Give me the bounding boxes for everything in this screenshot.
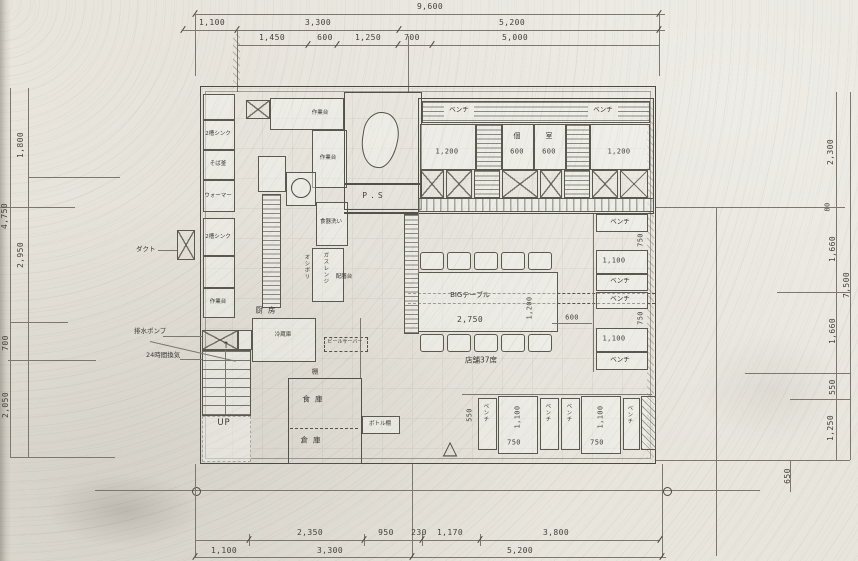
dim-line-left-outer [10, 88, 11, 458]
dim-line-top-total [195, 14, 665, 15]
dim-top-1450: 1,450 [259, 34, 285, 42]
survey-point-circle [663, 487, 672, 496]
up-arrow-icon: ↑ [222, 341, 230, 351]
wall-segment [360, 318, 361, 378]
tatami-walk-strip [474, 170, 500, 198]
dim-right-650: 650 [784, 468, 792, 484]
shelf-label: 棚 [312, 368, 319, 375]
dim-line-bottom-row1 [195, 540, 660, 541]
dim-bottom-1100: 1,100 [211, 547, 237, 555]
oshibori-label: オシボリ [303, 254, 309, 290]
big-table-length: 2,750 [457, 316, 483, 324]
dim-line-top-row3 [237, 45, 660, 46]
wall-segment [418, 212, 419, 274]
dim-left-1800: 1,800 [17, 132, 25, 158]
pot-circle [291, 178, 311, 198]
room-pantry [288, 378, 362, 464]
big-table-width: 1,200 [527, 296, 534, 319]
table-dim-label: 1,200 [435, 149, 458, 156]
survey-point-circle [192, 487, 201, 496]
dim-line-left-inner [28, 88, 29, 458]
duct-xbox [177, 230, 195, 260]
tatami-walk-strip [566, 124, 590, 170]
pump-label: 排水ポンプ [134, 328, 166, 335]
dim-line-aisle [552, 323, 592, 324]
ext-line [745, 373, 850, 374]
equipment-label: 作業台 [210, 299, 227, 305]
equipment-label: そば釜 [210, 161, 227, 167]
platform-step-edge [418, 198, 654, 212]
stairs-landing-xbox [202, 330, 238, 350]
pantry-label: 食庫 [303, 396, 328, 405]
hood-xbox [246, 100, 270, 119]
equipment-label: 作業台 [312, 110, 329, 116]
ext-line [656, 207, 845, 208]
chair [447, 334, 471, 352]
bench-label: ベンチ [482, 403, 488, 445]
dim-bottom-3300: 3,300 [317, 547, 343, 555]
dim-left-2950: 2,950 [17, 242, 25, 268]
tatami-xbox [446, 170, 472, 198]
beer-server-label: ビールサーバー [328, 340, 363, 346]
dim-right-1250: 1,250 [827, 415, 835, 441]
booth-dim-1100: 1,100 [602, 258, 625, 265]
dim-bottom-3800: 3,800 [543, 529, 569, 537]
dim-top-1250: 1,250 [355, 34, 381, 42]
equipment-label: 食器洗い [320, 219, 342, 225]
tatami-xbox [502, 170, 538, 198]
equipment-box [203, 256, 235, 288]
ext-line [195, 464, 196, 557]
dim-bottom-5200: 5,200 [507, 547, 533, 555]
dim-bottom-230: 230 [411, 529, 427, 537]
big-table [418, 272, 558, 332]
aisle-dim: 600 [565, 315, 579, 322]
chair [501, 252, 525, 270]
dim-right-550: 550 [829, 379, 837, 395]
dim-top-5000: 5,000 [502, 34, 528, 42]
equipment-label: 2槽シンク [205, 234, 231, 240]
booth-partition [593, 214, 594, 372]
booth-dim-1100: 1,100 [515, 405, 522, 428]
pipe-space-label: P.S [362, 192, 385, 200]
bench-label: ベンチ [610, 295, 630, 302]
dim-top-total: 9,600 [417, 3, 443, 11]
ext-line [195, 14, 196, 76]
kitchen-room-label: 厨房 [256, 307, 281, 316]
bench-label: ベンチ [449, 106, 469, 113]
ext-line [659, 14, 660, 76]
dim-bottom-1170: 1,170 [437, 529, 463, 537]
grid-line-mark [233, 34, 240, 88]
ext-line [28, 177, 120, 178]
pantry-divider [290, 428, 358, 429]
bench-label: ベンチ [626, 405, 632, 447]
ext-line [10, 322, 68, 323]
dim-right-2300: 2,300 [827, 139, 835, 165]
private-room-label: 室 [546, 132, 553, 140]
service-counter-hatch [404, 214, 419, 334]
dim-right-1660b: 1,660 [829, 318, 837, 344]
ext-line [662, 464, 663, 557]
floor-plan-sheet: 9,600 1,100 3,300 5,200 1,450 600 1,250 … [0, 0, 858, 561]
stairs-side-box [238, 330, 252, 350]
serving-counter-label: 配膳台 [336, 274, 353, 280]
ext-line [408, 36, 409, 92]
dim-left-2050: 2,050 [2, 392, 10, 418]
booth-dim-750: 750 [507, 440, 521, 447]
equipment-label: ガスレンジ [322, 252, 328, 298]
dim-top-600: 600 [317, 34, 333, 42]
bench-label: ベンチ [610, 356, 630, 363]
equipment-label: 作業台 [320, 155, 337, 161]
dim-top-3300: 3,300 [305, 19, 331, 27]
table-dim-label: 1,200 [607, 149, 630, 156]
tatami-walk-strip [476, 124, 502, 170]
capacity-label: 店舗37席 [465, 357, 497, 366]
tatami-xbox [540, 170, 562, 198]
bench-label: ベンチ [565, 403, 571, 445]
booth-dim-750: 750 [590, 440, 604, 447]
bench-label: ベンチ [610, 218, 630, 225]
chair [501, 334, 525, 352]
ext-line [656, 460, 850, 461]
dim-line-right-inner [836, 92, 837, 460]
dim-top-5200: 5,200 [499, 19, 525, 27]
tatami-xbox [420, 170, 444, 198]
ext-line [412, 464, 413, 557]
entrance-arrow-icon: △ [443, 437, 458, 459]
chair [420, 334, 444, 352]
chair [474, 252, 498, 270]
vent-label: 24時間換気 [146, 352, 180, 359]
dim-bottom-950: 950 [378, 529, 394, 537]
ext-line [790, 399, 850, 400]
dim-line-top-row2 [183, 30, 665, 31]
dim-right-7500: 7,500 [843, 272, 851, 298]
equipment-label: ウォーマー [204, 193, 232, 199]
leader-line [163, 336, 202, 337]
leader-line [180, 359, 202, 360]
equipment-box [203, 94, 235, 120]
dim-left-700: 700 [2, 335, 10, 351]
booth-dim-1100: 1,100 [598, 405, 605, 428]
booth-end-cabinet [641, 396, 656, 450]
duct-label: ダクト [136, 246, 156, 253]
fridge-label: 冷蔵庫 [275, 332, 292, 338]
dim-top-700: 700 [404, 34, 420, 42]
chair [420, 252, 444, 270]
dim-right-80: 80 [825, 202, 832, 211]
stairs-up-label: UP [217, 419, 230, 429]
dim-line-bottom-row2 [195, 557, 666, 558]
table-dim-label: 600 [510, 149, 524, 156]
fridge-box [252, 318, 316, 362]
dim-bottom-2350: 2,350 [297, 529, 323, 537]
island-counter [258, 156, 286, 192]
worktable-top [270, 98, 344, 130]
tatami-walk-strip [564, 170, 590, 198]
tatami-xbox [620, 170, 648, 198]
table-dim-label: 600 [542, 149, 556, 156]
paper-smudge [40, 470, 210, 550]
bench-label: ベンチ [610, 277, 630, 284]
equipment-label: 2槽シンク [205, 131, 231, 137]
private-room-label: 個 [514, 132, 521, 140]
bench-label: ベンチ [544, 403, 550, 445]
booth-dim-550: 550 [467, 408, 474, 422]
dim-right-1660a: 1,660 [829, 236, 837, 262]
big-table-label: BIGテーブル [450, 291, 490, 299]
bottle-shelf-label: ボトル棚 [369, 421, 391, 427]
leader-line [158, 250, 178, 251]
cooking-line-counter [262, 194, 281, 308]
chair [528, 334, 552, 352]
chair [474, 334, 498, 352]
booth-dim-1100: 1,100 [602, 336, 625, 343]
storage-label: 倉庫 [301, 437, 326, 446]
chair [528, 252, 552, 270]
dim-left-4750: 4,750 [1, 203, 9, 229]
ext-line [777, 292, 850, 293]
booth-dim-750: 750 [638, 233, 645, 247]
booth-dim-750: 750 [638, 311, 645, 325]
booth-partition [462, 394, 652, 395]
ext-line [10, 457, 115, 458]
ext-line [0, 207, 75, 208]
dim-top-1100: 1,100 [199, 19, 225, 27]
ext-line [8, 360, 96, 361]
chair [447, 252, 471, 270]
bench-label: ベンチ [593, 106, 613, 113]
boundary-line-right [716, 207, 717, 556]
tatami-xbox [592, 170, 618, 198]
